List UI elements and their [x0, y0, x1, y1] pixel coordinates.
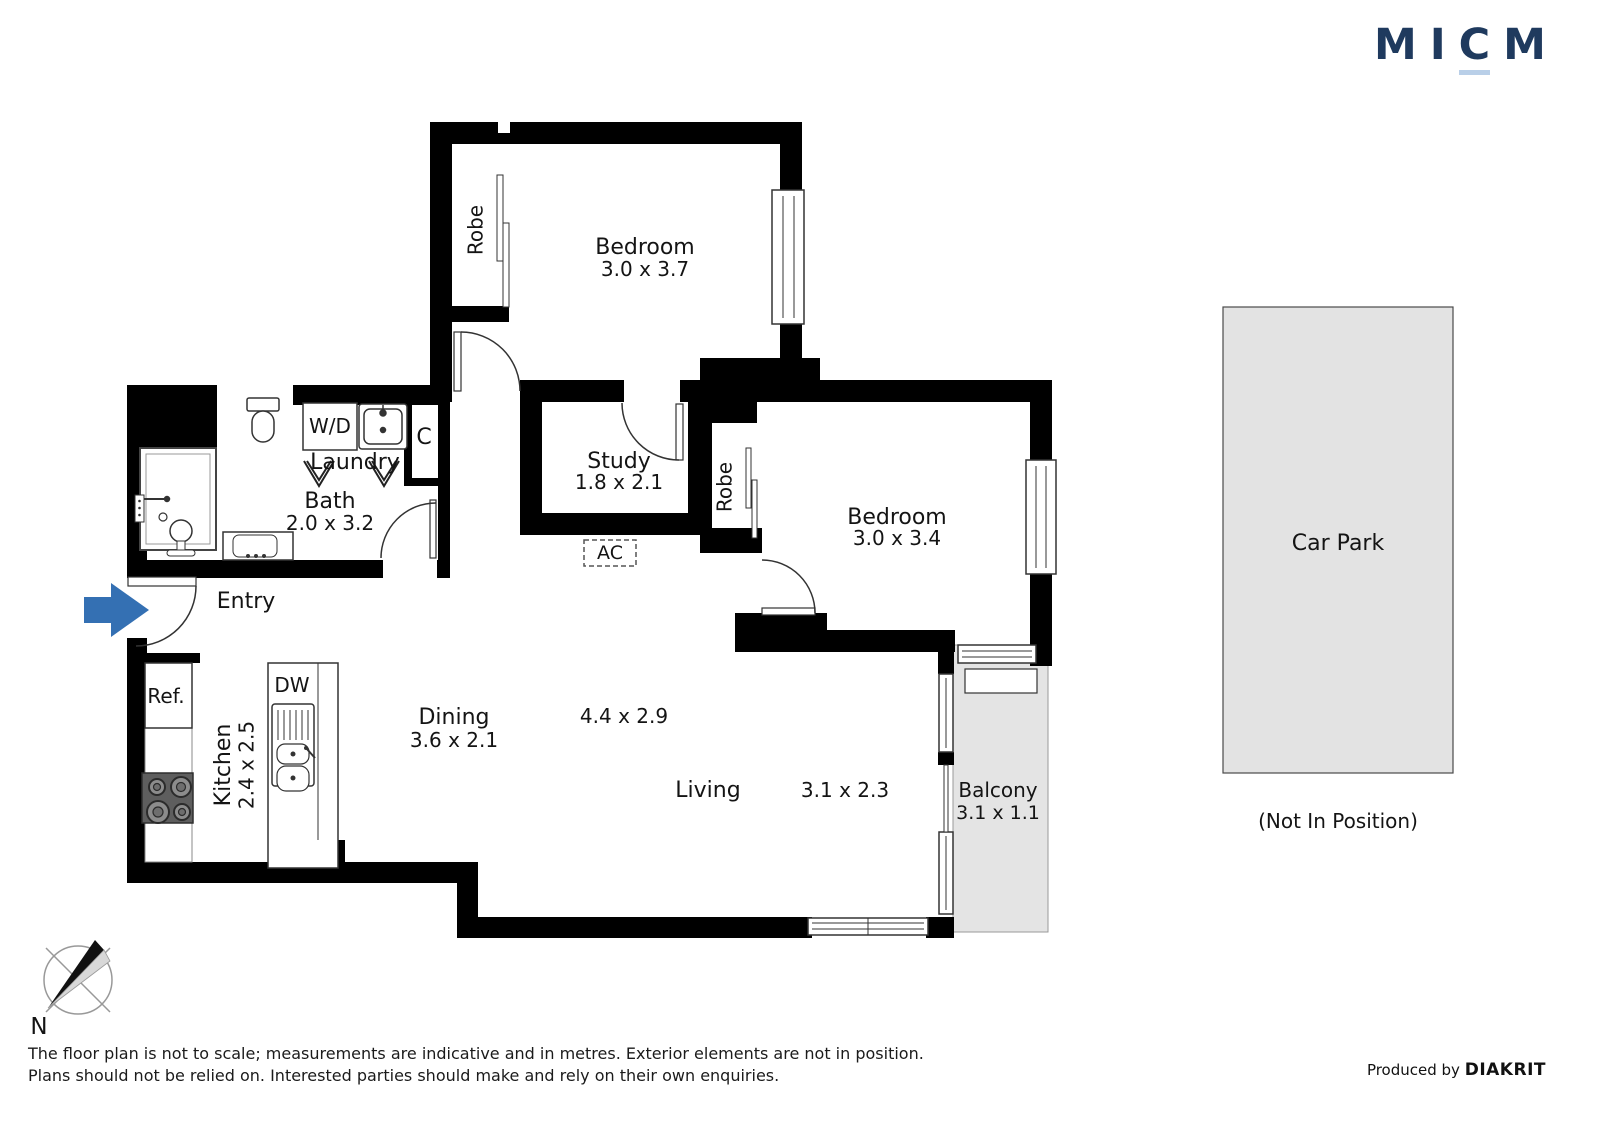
ac-label: AC — [597, 542, 623, 564]
producer-name: DIAKRIT — [1465, 1060, 1546, 1080]
logo-letter-i: I — [1430, 24, 1446, 67]
wall-notch — [498, 122, 510, 133]
robe2-label: Robe — [713, 462, 737, 512]
compass-icon — [44, 940, 112, 1014]
living-dining-overall-dims: 4.4 x 2.9 — [580, 704, 668, 728]
disclaimer-line-1: The floor plan is not to scale; measurem… — [28, 1044, 924, 1063]
balcony-left-window-lower — [939, 832, 953, 914]
entry-arrow-icon — [84, 583, 149, 637]
dining-dims: 3.6 x 2.1 — [410, 728, 498, 752]
balcony-planter — [965, 669, 1037, 693]
stove — [142, 773, 193, 823]
logo-letter-m2: M — [1503, 24, 1546, 67]
bedroom1-door — [454, 332, 520, 391]
fridge-label: Ref. — [147, 684, 184, 708]
kitchen-dims: 2.4 x 2.5 — [235, 721, 259, 809]
micm-logo: M I C M — [1374, 24, 1546, 67]
produced-by: Produced by DIAKRIT — [1367, 1060, 1546, 1080]
bedroom1-dims: 3.0 x 3.7 — [601, 257, 689, 281]
bedroom2-door — [762, 560, 815, 615]
floorplan-page: Bedroom 3.0 x 3.7 Robe Study 1.8 x 2.1 R… — [0, 0, 1600, 1131]
bedroom1-window — [772, 190, 804, 324]
floor-plan-svg: Bedroom 3.0 x 3.7 Robe Study 1.8 x 2.1 R… — [0, 0, 1600, 1131]
bedroom2-window — [1026, 460, 1056, 574]
entry-label: Entry — [217, 589, 276, 614]
closet-label: C — [416, 425, 431, 450]
robe1-label: Robe — [464, 205, 488, 255]
toilet — [247, 398, 279, 442]
vanity-sink — [223, 532, 293, 560]
balcony-left-window-upper — [939, 674, 953, 752]
washer-dryer-label: W/D — [309, 414, 351, 438]
living-dims: 3.1 x 2.3 — [801, 778, 889, 802]
bath-dims: 2.0 x 3.2 — [286, 511, 374, 535]
compass-north-label: N — [30, 1014, 47, 1040]
logo-letter-c: C — [1459, 24, 1491, 75]
car-park-label: Car Park — [1292, 531, 1385, 556]
bedroom2-dims: 3.0 x 3.4 — [853, 526, 941, 550]
living-sliding-window — [808, 918, 928, 935]
living-label: Living — [675, 778, 740, 803]
disclaimer-line-2: Plans should not be relied on. Intereste… — [28, 1066, 779, 1085]
bath-door — [381, 500, 436, 558]
produced-by-text: Produced by — [1367, 1061, 1460, 1079]
kitchen-label: Kitchen — [211, 724, 236, 807]
balcony-label: Balcony — [958, 778, 1037, 802]
balcony-top-window — [958, 645, 1036, 663]
balcony-glass-panel — [944, 765, 948, 832]
laundry-label: Laundry — [310, 450, 400, 475]
balcony-dims: 3.1 x 1.1 — [956, 802, 1040, 824]
dining-label: Dining — [418, 705, 489, 730]
laundry-sink — [359, 404, 407, 449]
study-dims: 1.8 x 2.1 — [575, 470, 663, 494]
car-park-note: (Not In Position) — [1258, 809, 1418, 833]
logo-letter-m1: M — [1374, 24, 1417, 67]
dishwasher-label: DW — [274, 673, 309, 697]
